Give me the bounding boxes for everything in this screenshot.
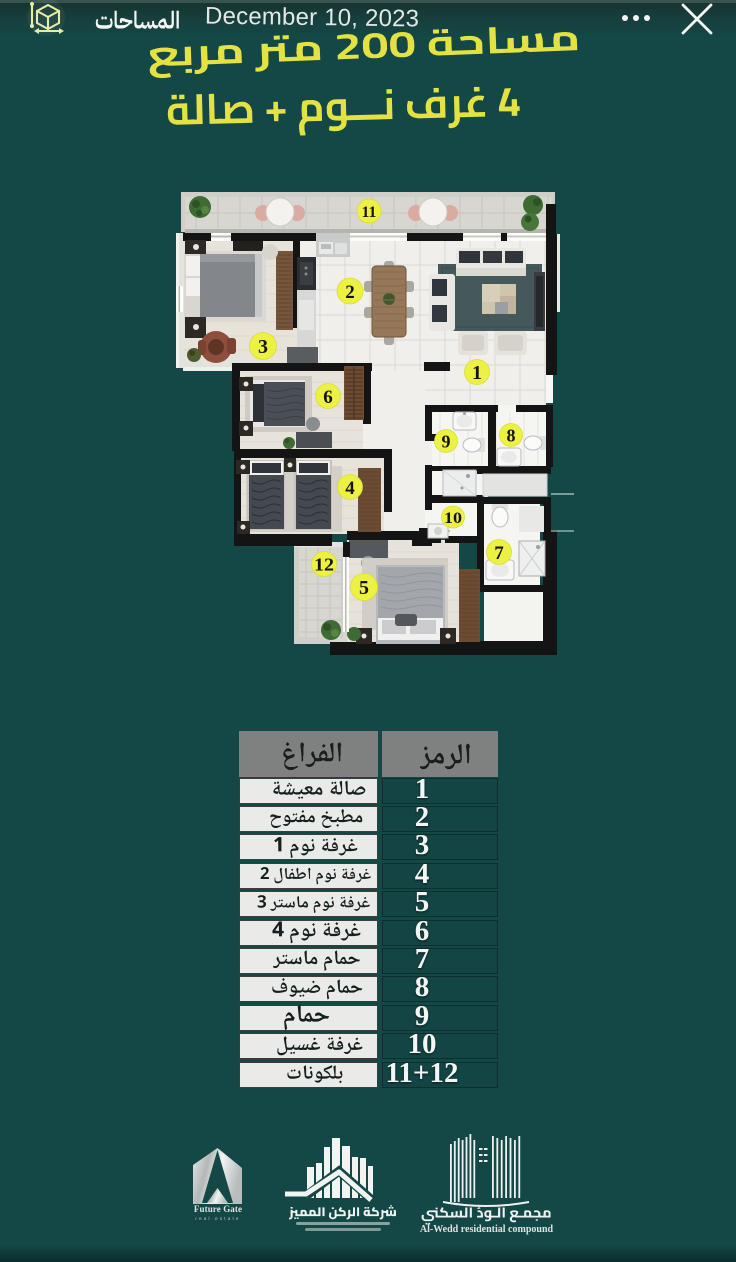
svg-text:1: 1 — [472, 362, 482, 384]
svg-text:10: 10 — [444, 510, 462, 527]
svg-text:11: 11 — [362, 204, 377, 221]
svg-text:12: 12 — [314, 554, 334, 574]
svg-text:4: 4 — [345, 478, 355, 499]
svg-text:2: 2 — [345, 282, 355, 303]
svg-text:8: 8 — [507, 425, 516, 445]
svg-text:9: 9 — [442, 431, 451, 451]
svg-text:5: 5 — [359, 577, 369, 599]
svg-text:7: 7 — [494, 543, 504, 564]
svg-text:3: 3 — [258, 336, 268, 358]
svg-text:6: 6 — [323, 387, 333, 408]
